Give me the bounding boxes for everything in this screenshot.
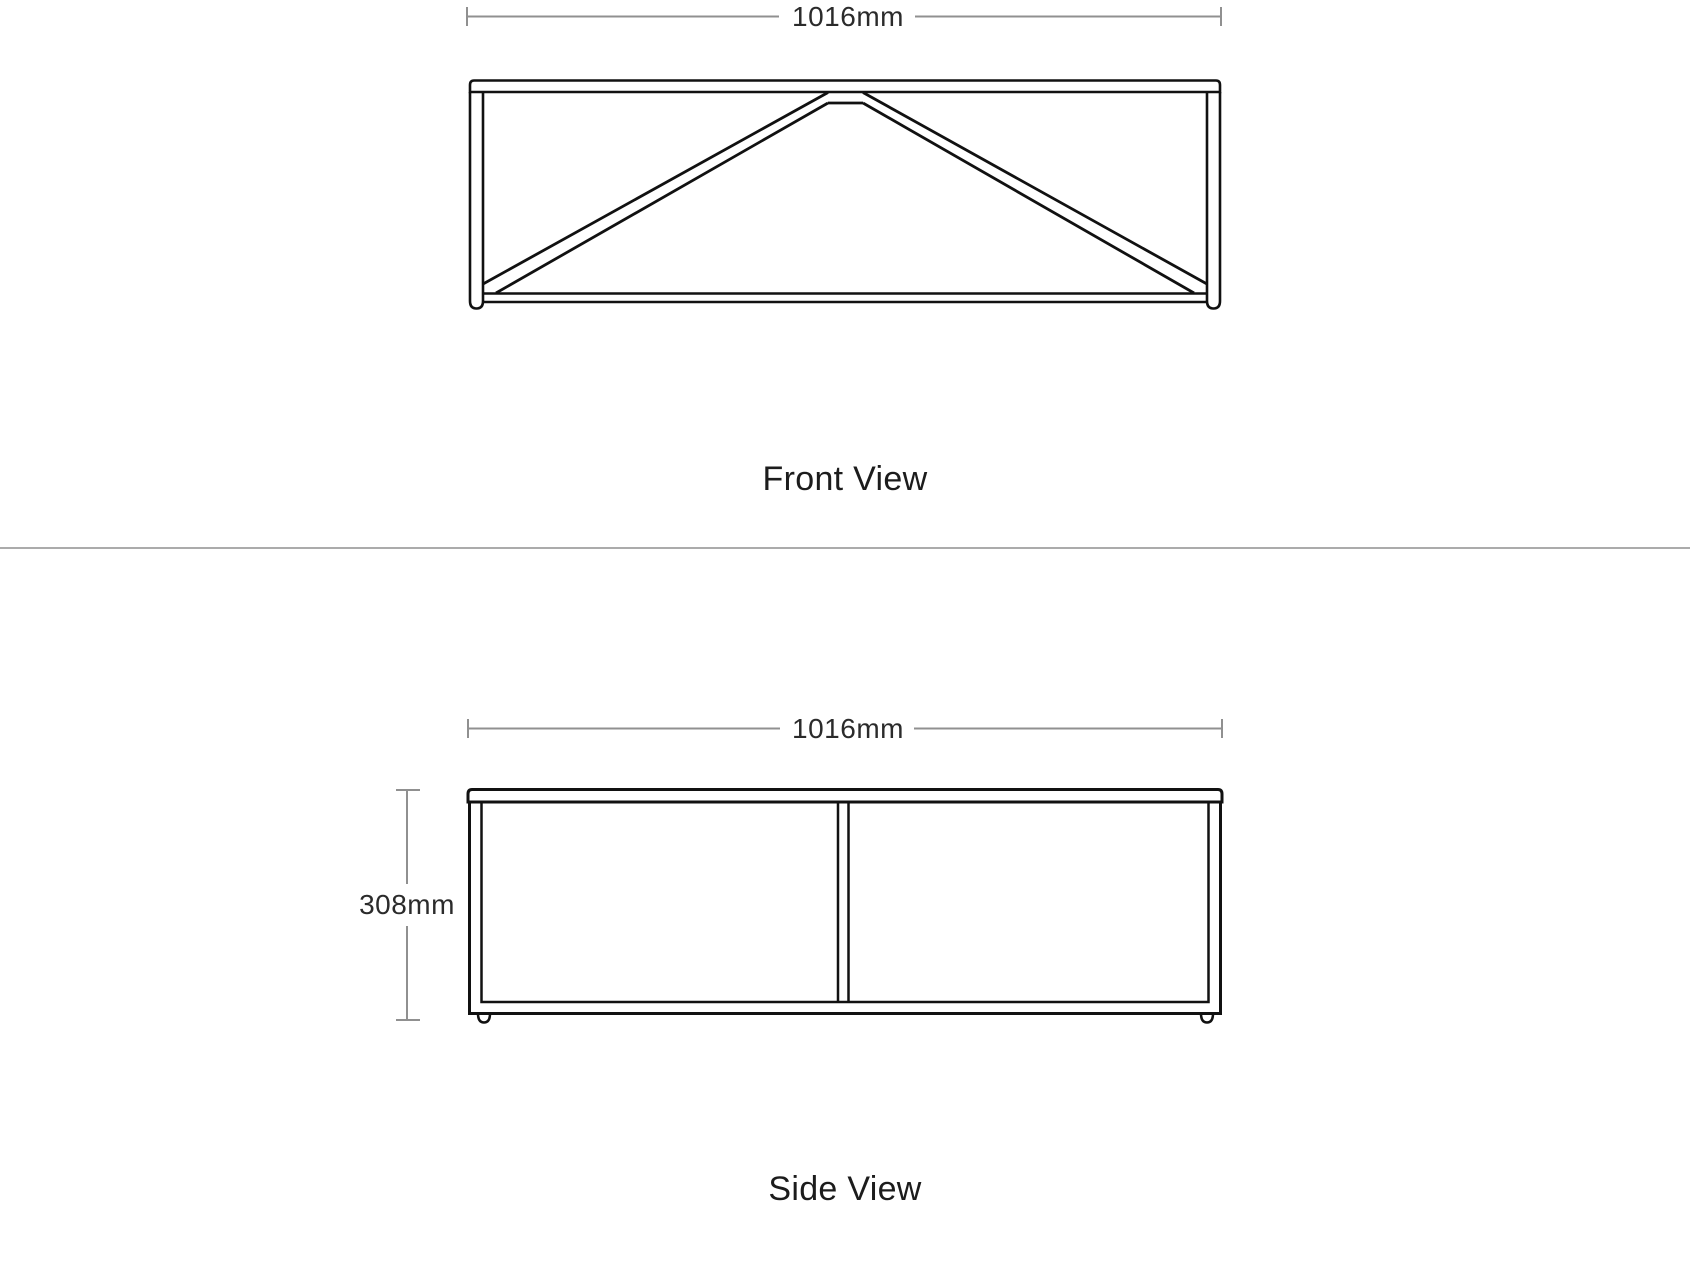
side-inner-frame	[482, 802, 1209, 1002]
section-divider	[0, 547, 1690, 549]
front-bottom-rail	[483, 294, 1207, 303]
front-width-dim-label: 1016mm	[792, 1, 904, 32]
front-right-brace	[863, 93, 1207, 294]
side-width-dim-label: 1016mm	[792, 713, 904, 744]
side-outer-frame	[470, 802, 1221, 1014]
front-left-brace	[483, 93, 828, 294]
side-height-dim-label: 308mm	[359, 889, 455, 920]
front-tabletop	[470, 81, 1220, 93]
front-view-drawing	[470, 81, 1220, 309]
side-center-divider	[838, 802, 849, 1002]
side-top-bar	[468, 790, 1222, 803]
front-left-leg	[470, 92, 483, 309]
technical-drawing-canvas: 1016mm 1016mm 308mm	[0, 0, 1690, 1262]
side-view-drawing	[468, 790, 1222, 1023]
front-right-leg	[1207, 92, 1220, 309]
side-view-title: Side View	[0, 1172, 1690, 1206]
front-view-title: Front View	[0, 462, 1690, 496]
